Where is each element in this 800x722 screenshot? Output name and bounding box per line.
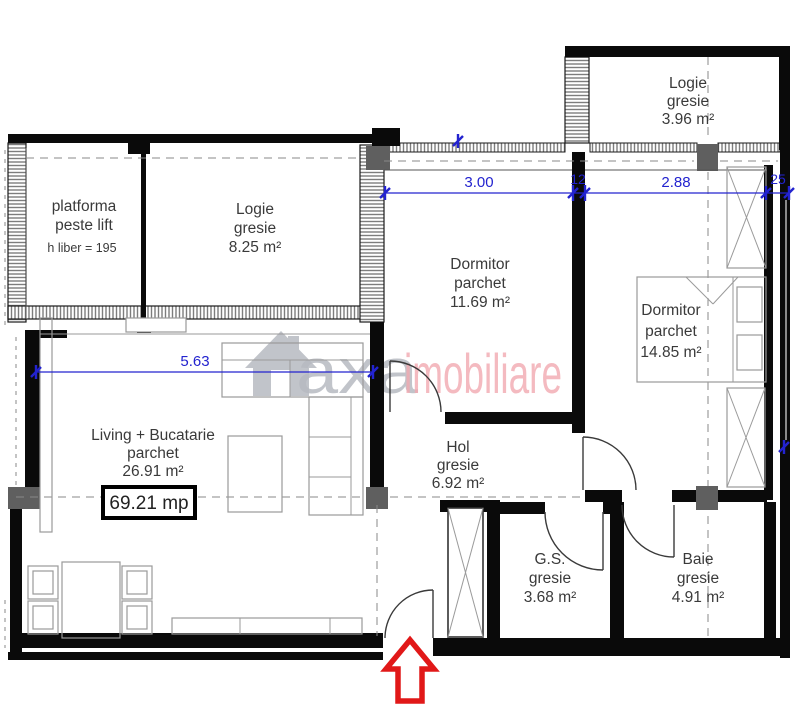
- logie2-line2: gresie: [667, 93, 709, 110]
- gs-area: 3.68 m²: [524, 589, 577, 606]
- entrance-arrow-icon: [386, 640, 434, 701]
- gs-line2: gresie: [529, 570, 571, 587]
- living-line1: Living + Bucatarie: [91, 427, 215, 444]
- tv-cabinet: [40, 318, 52, 532]
- platforma-line2: peste lift: [55, 217, 113, 234]
- dim-2-88: 2.88: [661, 174, 690, 191]
- hol-line1: Hol: [446, 439, 469, 456]
- baie-line2: gresie: [677, 570, 719, 587]
- entry-closet: [448, 508, 483, 637]
- dorm2-line1: Dormitor: [641, 302, 700, 319]
- room-label-hol: Hol gresie 6.92 m²: [432, 439, 485, 492]
- bathroom-door: [622, 505, 674, 557]
- dim-25: 25: [770, 171, 786, 187]
- wardrobe: [727, 167, 766, 268]
- watermark-gray-text: axa: [296, 335, 418, 407]
- hol-line2: gresie: [437, 457, 479, 474]
- living-area: 26.91 m²: [122, 463, 183, 480]
- platforma-note: h liber = 195: [47, 241, 116, 255]
- wardrobe: [727, 388, 765, 487]
- living-line2: parchet: [127, 445, 179, 462]
- hol-area: 6.92 m²: [432, 475, 485, 492]
- kitchen-counter: [172, 618, 362, 634]
- baie-line1: Baie: [682, 551, 713, 568]
- room-label-dormitor-2: Dormitor parchet 14.85 m²: [640, 302, 701, 361]
- gs-line1: G.S.: [534, 551, 565, 568]
- logie2-line1: Logie: [669, 75, 707, 92]
- dim-12: 12: [570, 171, 586, 187]
- total-area-value: 69.21 mp: [109, 493, 188, 514]
- room-label-platforma: platforma peste lift h liber = 195: [47, 198, 116, 255]
- dorm1-line2: parchet: [454, 275, 506, 292]
- logie1-line2: gresie: [234, 220, 276, 237]
- baie-area: 4.91 m²: [672, 589, 725, 606]
- room-label-logie-2: Logie gresie 3.96 m²: [662, 75, 715, 128]
- floor-plan: axa imobiliare: [0, 0, 800, 722]
- dorm2-area: 14.85 m²: [640, 344, 701, 361]
- entrance-door: [385, 590, 433, 638]
- dim-3-00: 3.00: [464, 174, 493, 191]
- logie1-line1: Logie: [236, 201, 274, 218]
- dorm2-line2: parchet: [645, 323, 697, 340]
- brand-watermark: axa imobiliare: [245, 331, 562, 407]
- bedroom2-door: [583, 437, 636, 490]
- logie1-area: 8.25 m²: [229, 239, 282, 256]
- dorm1-line1: Dormitor: [450, 256, 509, 273]
- pillow: [737, 287, 762, 322]
- room-label-dormitor-1: Dormitor parchet 11.69 m²: [450, 256, 510, 311]
- room-label-logie-1: Logie gresie 8.25 m²: [229, 201, 282, 256]
- room-label-baie: Baie gresie 4.91 m²: [672, 551, 725, 606]
- total-area-box: 69.21 mp: [103, 487, 195, 518]
- coffee-table: [228, 436, 282, 512]
- logie2-area: 3.96 m²: [662, 111, 715, 128]
- watermark-pink-text: imobiliare: [404, 342, 562, 405]
- window-sill: [126, 318, 186, 332]
- platforma-line1: platforma: [52, 198, 117, 215]
- dining-table: [28, 562, 152, 638]
- dorm1-area: 11.69 m²: [450, 294, 510, 311]
- dim-5-63: 5.63: [180, 353, 209, 370]
- pillow: [737, 335, 762, 370]
- room-label-living: Living + Bucatarie parchet 26.91 m²: [91, 427, 215, 480]
